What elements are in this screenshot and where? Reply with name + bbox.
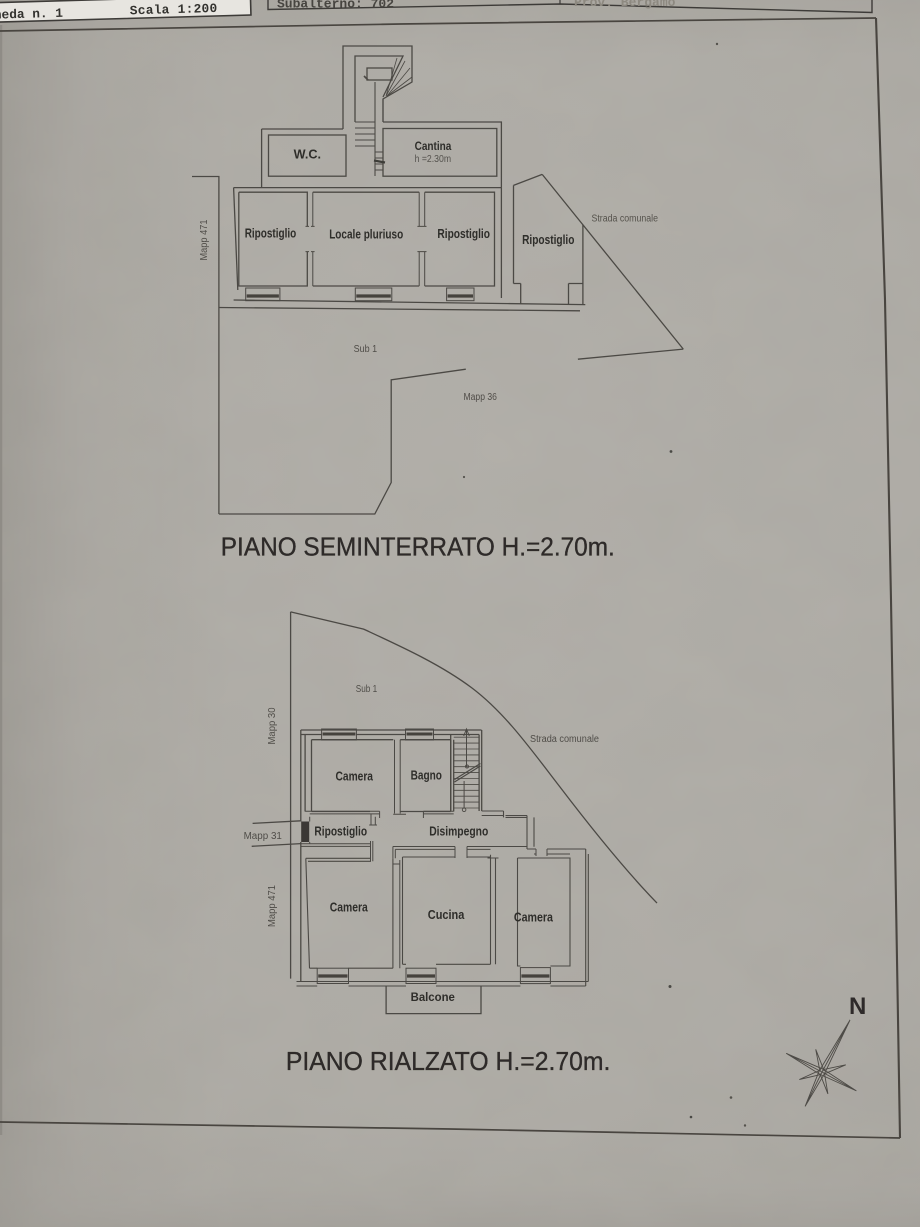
- svg-text:N: N: [849, 993, 866, 1020]
- svg-text:Disimpegno: Disimpegno: [429, 824, 488, 839]
- svg-text:Scala 1:200: Scala 1:200: [130, 1, 218, 18]
- svg-text:Ripostiglio: Ripostiglio: [314, 824, 367, 839]
- svg-text:Mapp 30: Mapp 30: [267, 707, 278, 744]
- svg-text:Camera: Camera: [336, 769, 374, 784]
- svg-text:Sub 1: Sub 1: [356, 684, 378, 695]
- svg-text:h =2.30m: h =2.30m: [415, 154, 452, 165]
- svg-text:Ripostiglio: Ripostiglio: [437, 226, 490, 241]
- svg-text:Ripostiglio: Ripostiglio: [522, 232, 574, 247]
- svg-text:Cucina: Cucina: [428, 907, 465, 922]
- svg-text:PIANO RIALZATO H.=2.70m.: PIANO RIALZATO H.=2.70m.: [286, 1046, 611, 1076]
- svg-text:Camera: Camera: [330, 900, 369, 915]
- svg-text:Mapp 471: Mapp 471: [199, 219, 210, 260]
- svg-text:Mapp 471: Mapp 471: [267, 885, 278, 927]
- svg-text:Mapp 36: Mapp 36: [464, 392, 498, 403]
- svg-text:Strada comunale: Strada comunale: [530, 734, 599, 745]
- svg-text:Balcone: Balcone: [411, 992, 455, 1004]
- svg-text:W.C.: W.C.: [294, 148, 321, 162]
- svg-text:Prov. Bergamo: Prov. Bergamo: [574, 0, 676, 10]
- svg-text:Strada comunale: Strada comunale: [592, 214, 659, 225]
- svg-text:Cantina: Cantina: [415, 141, 452, 153]
- svg-text:Sub 1: Sub 1: [354, 344, 378, 355]
- svg-text:Ripostiglio: Ripostiglio: [245, 226, 297, 241]
- svg-text:Camera: Camera: [514, 910, 554, 925]
- svg-text:PIANO SEMINTERRATO H.=2.70m.: PIANO SEMINTERRATO H.=2.70m.: [221, 532, 615, 562]
- svg-text:heda n. 1: heda n. 1: [0, 6, 63, 23]
- svg-text:Subalterno: 702: Subalterno: 702: [277, 0, 394, 12]
- svg-text:Locale pluriuso: Locale pluriuso: [329, 227, 403, 242]
- svg-text:Mapp 31: Mapp 31: [244, 831, 283, 842]
- svg-text:Bagno: Bagno: [411, 768, 442, 783]
